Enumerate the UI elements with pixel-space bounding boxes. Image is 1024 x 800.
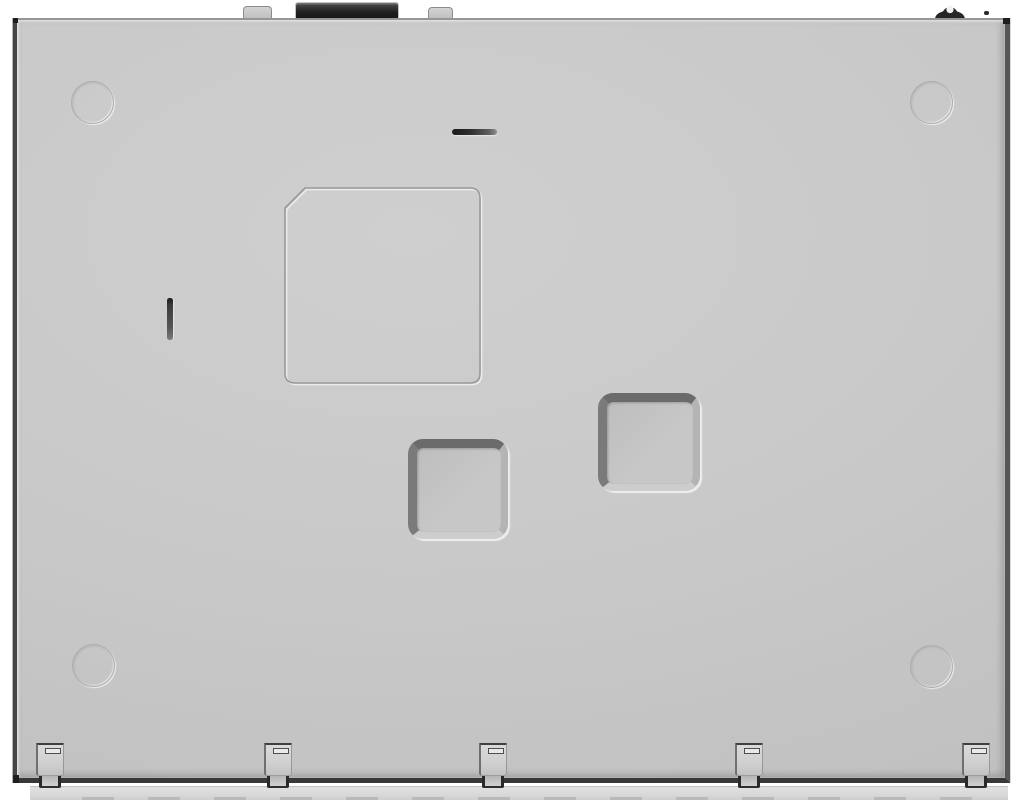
clip-hook (738, 776, 760, 788)
bottom-rail (30, 786, 1008, 800)
clip-body (735, 743, 763, 776)
bottom-clip (264, 743, 292, 789)
corner-tick (13, 775, 19, 783)
panel-frame (13, 18, 1010, 783)
clip-notch (45, 748, 61, 754)
clip-hook (965, 776, 987, 788)
clip-hook (482, 776, 504, 788)
corner-tick (1003, 18, 1010, 24)
bottom-clip (36, 743, 64, 789)
punched-slot (452, 129, 497, 135)
clip-hook (267, 776, 289, 788)
clip-notch (744, 748, 760, 754)
clip-notch (971, 748, 987, 754)
emboss-circle (910, 81, 953, 124)
square-recess (408, 439, 508, 539)
emboss-circle (72, 644, 115, 687)
bottom-clip (962, 743, 990, 789)
corner-tick (13, 18, 18, 23)
rivet-dot (984, 11, 989, 15)
clip-notch (273, 748, 289, 754)
large-recess-emboss (280, 183, 486, 389)
bottom-clip (735, 743, 763, 789)
bottom-clip (479, 743, 507, 789)
punched-slot (167, 298, 173, 340)
emboss-circle (71, 81, 114, 124)
clip-notch (488, 748, 504, 754)
clip-body (962, 743, 990, 776)
clip-body (36, 743, 64, 776)
clip-body (264, 743, 292, 776)
emboss-circle (910, 645, 953, 688)
square-recess (598, 393, 700, 491)
clip-hook (39, 776, 61, 788)
chassis-panel-render (0, 0, 1024, 800)
panel-face (17, 20, 1005, 778)
clip-body (479, 743, 507, 776)
